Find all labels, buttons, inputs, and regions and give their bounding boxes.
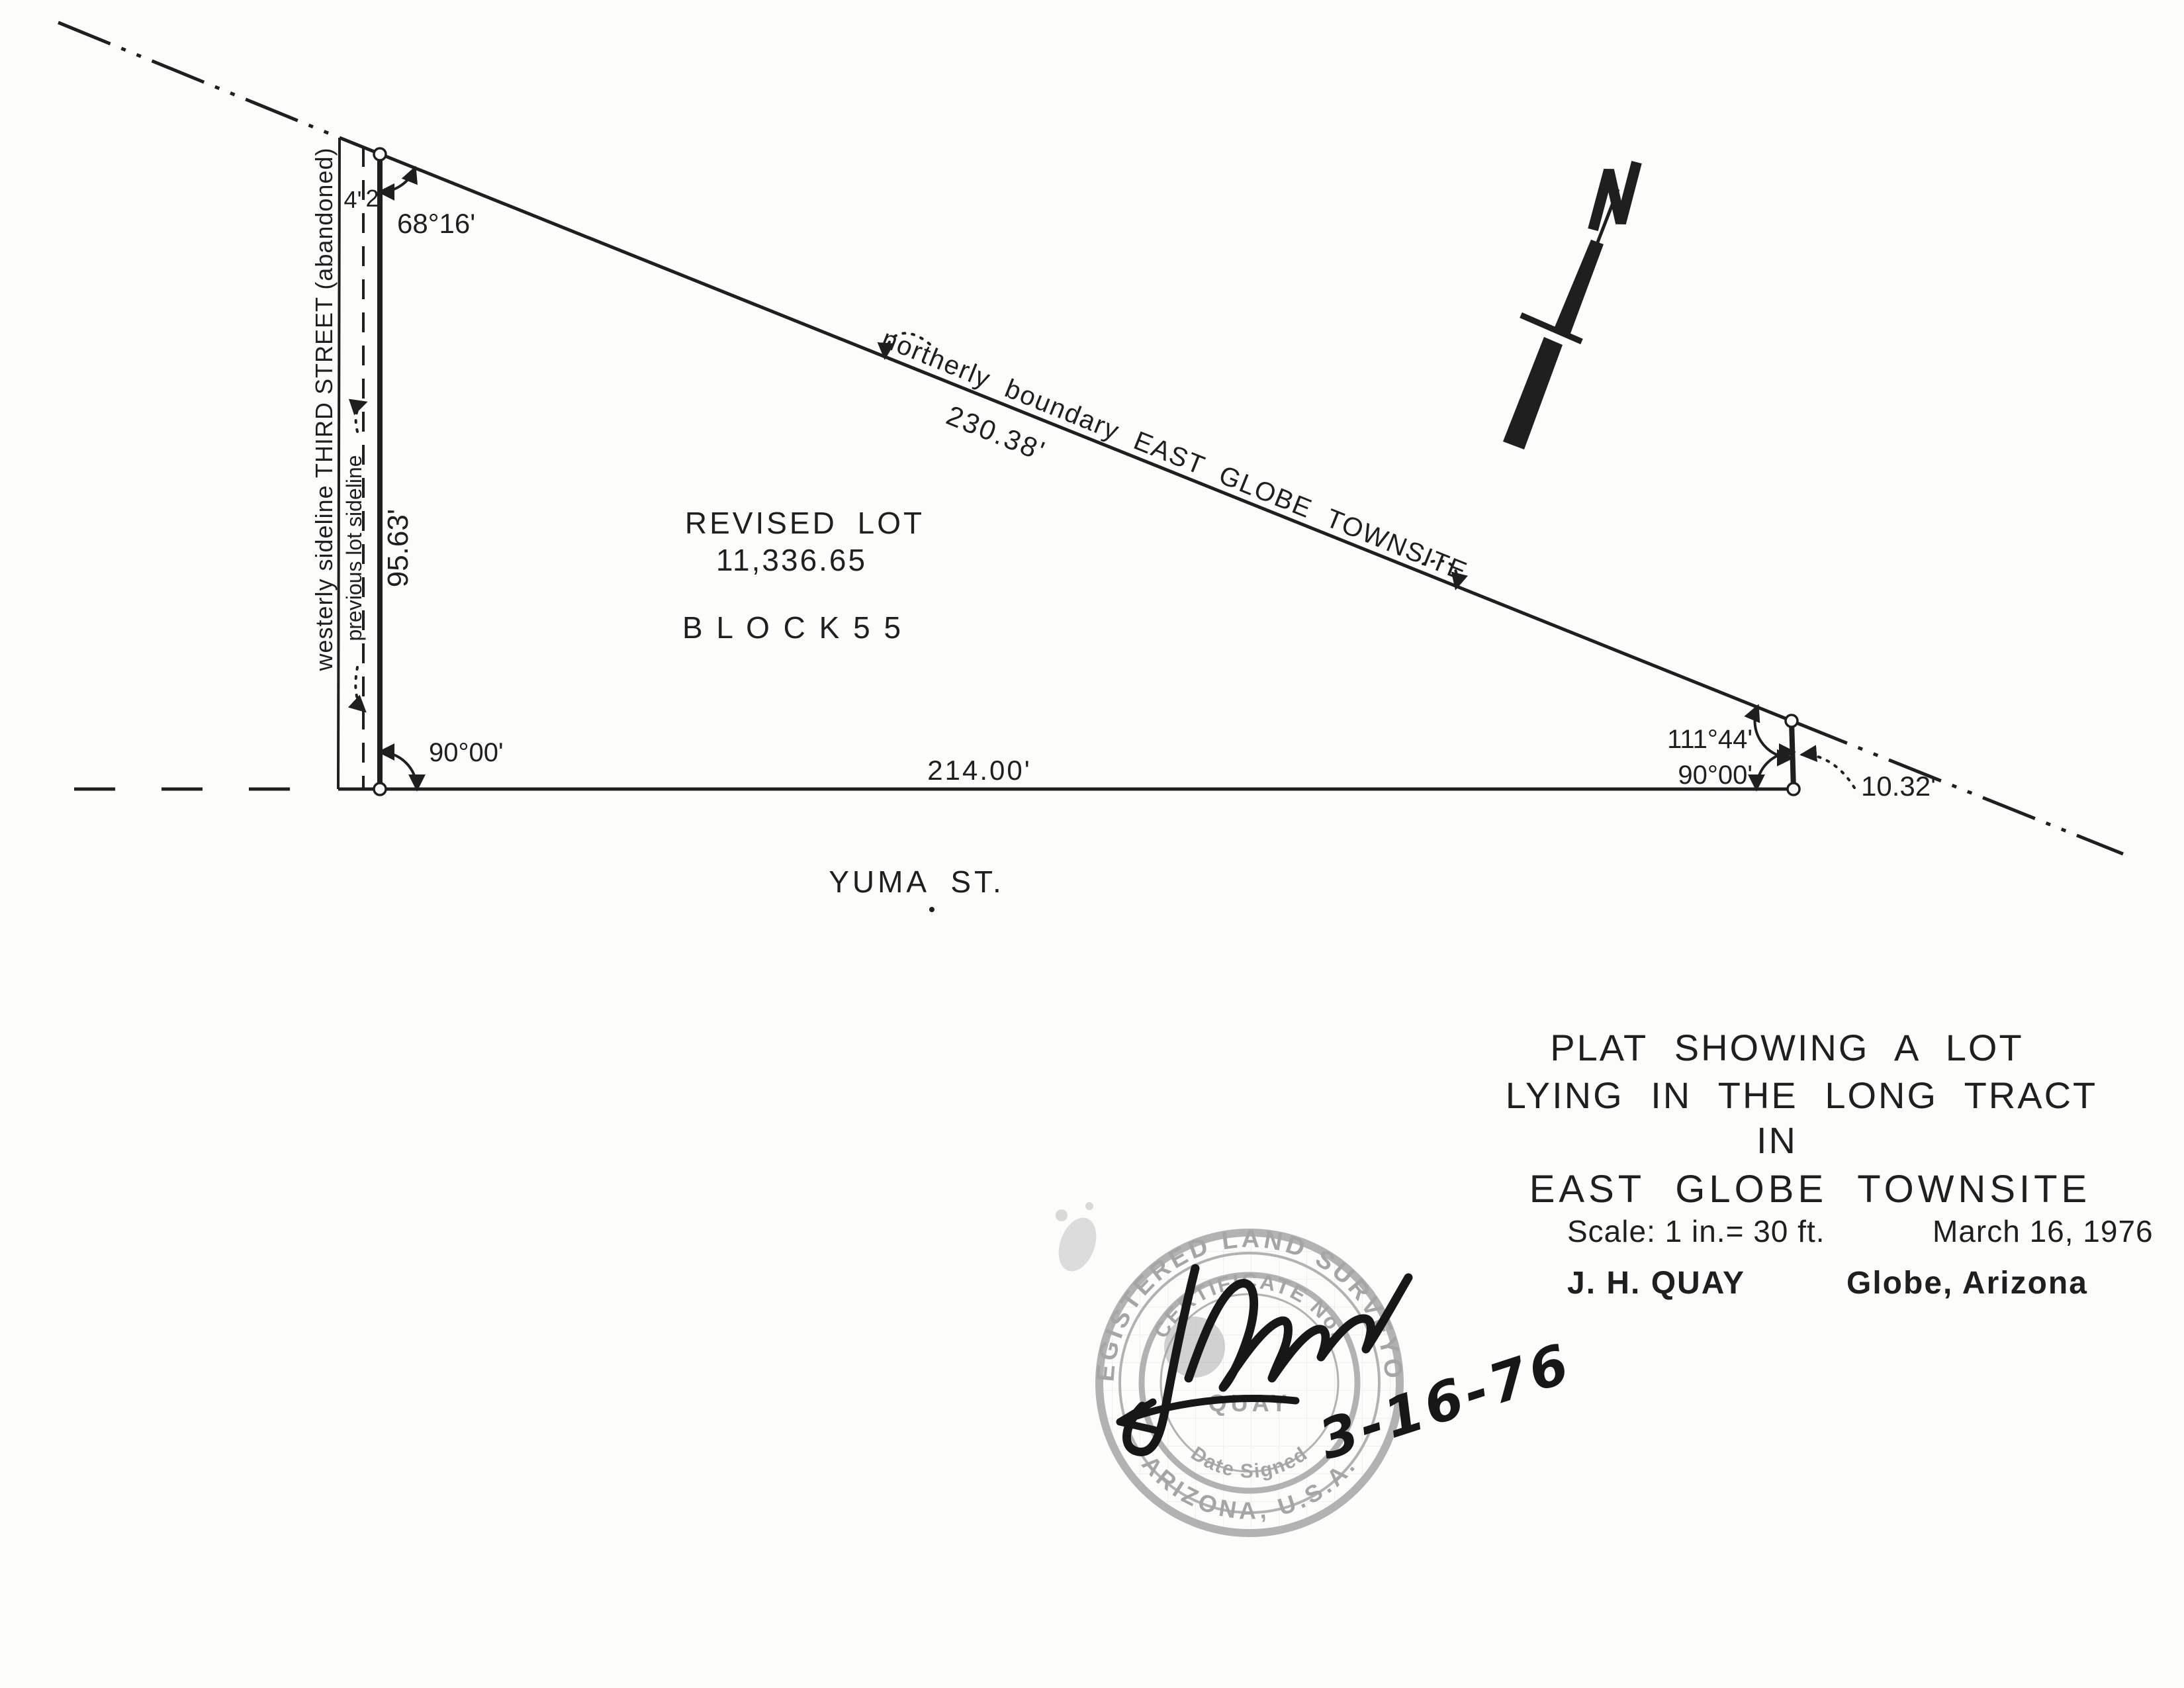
photocopy-speck-1: [1056, 1209, 1068, 1221]
corner-point-southwest: [374, 783, 386, 795]
south-length-label: 214.00': [927, 755, 1031, 786]
stray-ink-dot: [929, 907, 934, 912]
west-length-label: 95.63': [382, 509, 414, 588]
lot-name-label: REVISED LOT: [685, 506, 925, 540]
plat-sheet: westerly sideline THIRD STREET (abandone…: [0, 0, 2184, 1688]
offset-4ft-label: 4': [344, 186, 362, 213]
photocopy-speck-2: [1085, 1202, 1093, 1210]
title-line4: EAST GLOBE TOWNSITE: [1529, 1168, 2091, 1211]
title-line3: IN: [1756, 1119, 1797, 1161]
title-line2: LYING IN THE LONG TRACT: [1506, 1074, 2097, 1116]
angle-northeast-label: 111°44': [1667, 725, 1752, 754]
previous-sideline-label: previous lot sideline: [342, 455, 366, 641]
corner-point-northwest: [374, 148, 386, 160]
lot-area-label: 11,336.65: [716, 543, 867, 577]
angle-southwest-label: 90°00': [429, 738, 504, 767]
date-note: March 16, 1976: [1933, 1214, 2154, 1248]
corner-point-southeast: [1788, 783, 1799, 795]
plat-canvas: westerly sideline THIRD STREET (abandone…: [0, 0, 2184, 1688]
corner-point-northeast: [1786, 715, 1797, 727]
offset-2ft-label: 2': [366, 185, 384, 212]
angle-northwest-label: 68°16': [397, 208, 475, 239]
scale-note: Scale: 1 in.= 30 ft.: [1567, 1214, 1825, 1248]
block-label: B L O C K 5 5: [682, 610, 903, 645]
third-street-label: westerly sideline THIRD STREET (abandone…: [310, 148, 338, 672]
surveyor-name: J. H. QUAY: [1567, 1266, 1745, 1301]
third-street-westerly-sideline: [338, 138, 340, 789]
east-length-label: 10.32': [1861, 771, 1936, 802]
yuma-street-label: YUMA ST.: [829, 865, 1005, 899]
angle-southeast-label: 90°00': [1678, 761, 1752, 790]
surveyor-location: Globe, Arizona: [1846, 1266, 2088, 1301]
title-line1: PLAT SHOWING A LOT: [1550, 1027, 2023, 1068]
east-lot-line: [1792, 721, 1794, 789]
